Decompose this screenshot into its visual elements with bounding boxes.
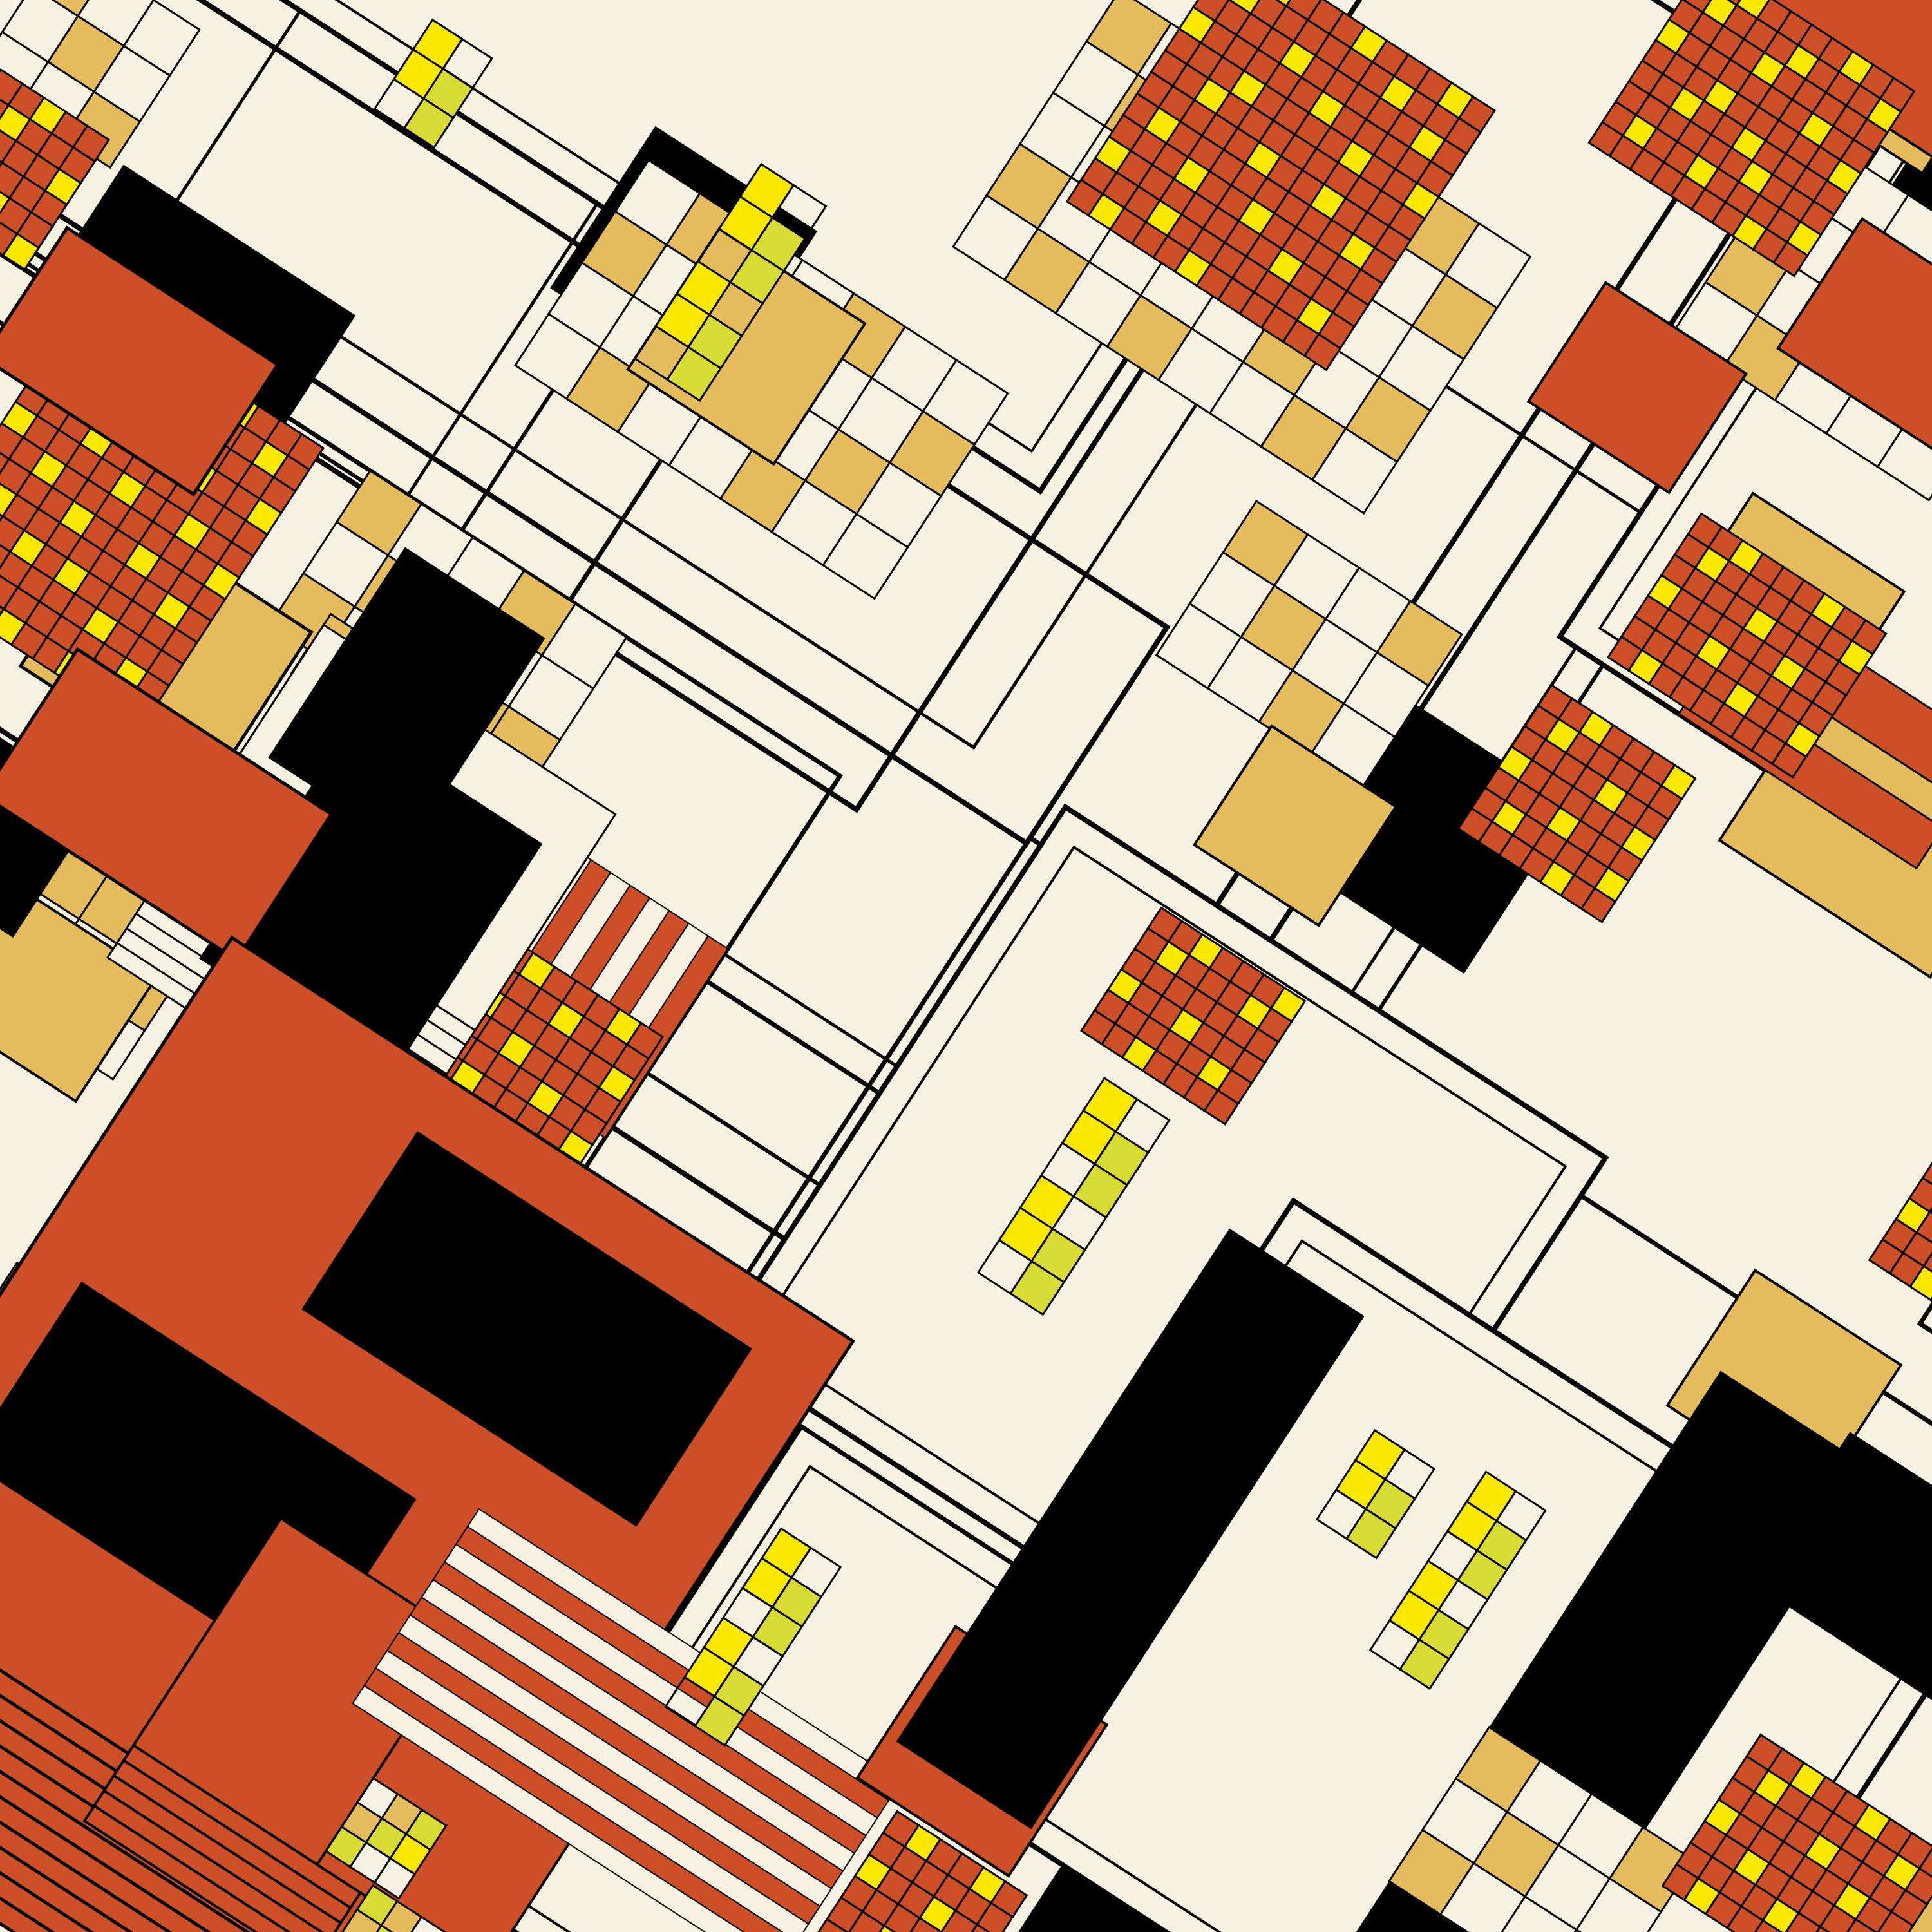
generative-artwork-canvas (0, 0, 1932, 1932)
rotated-art-layer (0, 0, 1932, 1932)
